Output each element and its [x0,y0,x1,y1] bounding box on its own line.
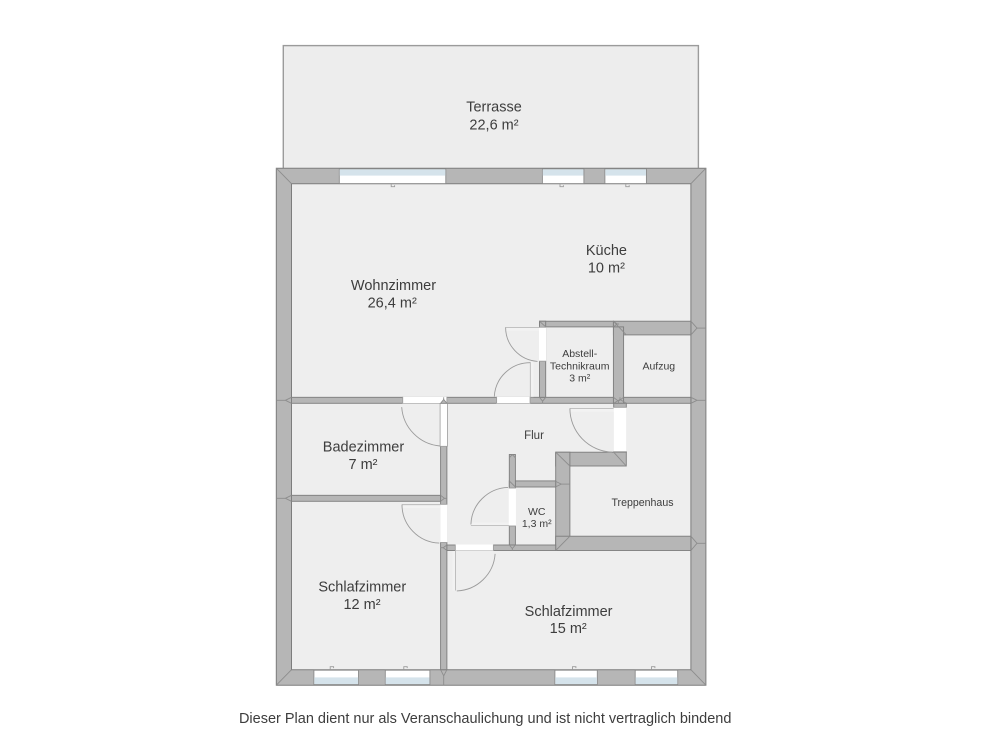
svg-text:12 m²: 12 m² [343,597,380,613]
svg-text:Flur: Flur [524,430,544,442]
svg-text:1,3 m²: 1,3 m² [522,518,552,530]
svg-text:Küche: Küche [586,243,627,259]
svg-text:WC: WC [528,506,546,518]
svg-text:3 m²: 3 m² [569,373,591,385]
svg-text:22,6 m²: 22,6 m² [469,118,518,134]
svg-text:Aufzug: Aufzug [642,361,675,373]
svg-text:Technikraum: Technikraum [550,360,610,372]
svg-text:Wohnzimmer: Wohnzimmer [351,278,436,294]
svg-text:10 m²: 10 m² [588,261,625,277]
svg-text:26,4 m²: 26,4 m² [368,296,417,312]
svg-text:Dieser Plan dient nur als Vera: Dieser Plan dient nur als Veranschaulich… [239,711,732,727]
svg-text:7 m²: 7 m² [349,457,378,473]
svg-text:Badezimmer: Badezimmer [323,440,405,456]
svg-text:Treppenhaus: Treppenhaus [611,497,673,509]
svg-text:Schlafzimmer: Schlafzimmer [318,579,406,595]
svg-text:Terrasse: Terrasse [466,100,522,116]
svg-text:Abstell-: Abstell- [562,348,598,360]
svg-text:15 m²: 15 m² [550,621,587,637]
svg-text:Schlafzimmer: Schlafzimmer [525,604,613,620]
